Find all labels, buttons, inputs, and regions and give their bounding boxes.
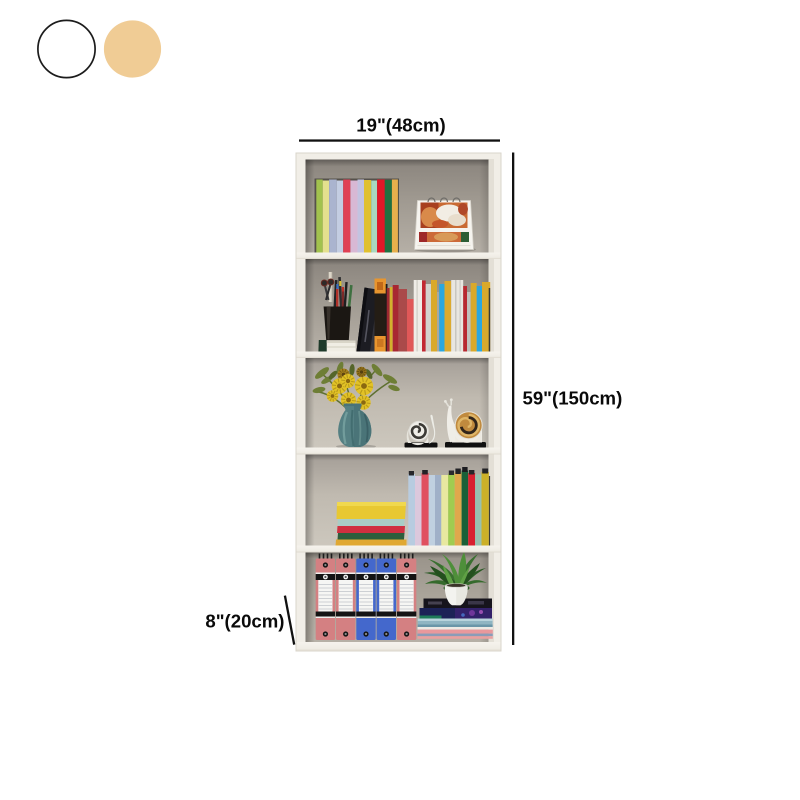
svg-text:59"(150cm): 59"(150cm) [523,388,623,409]
svg-text:8"(20cm): 8"(20cm) [205,611,284,632]
svg-text:19"(48cm): 19"(48cm) [356,115,445,136]
